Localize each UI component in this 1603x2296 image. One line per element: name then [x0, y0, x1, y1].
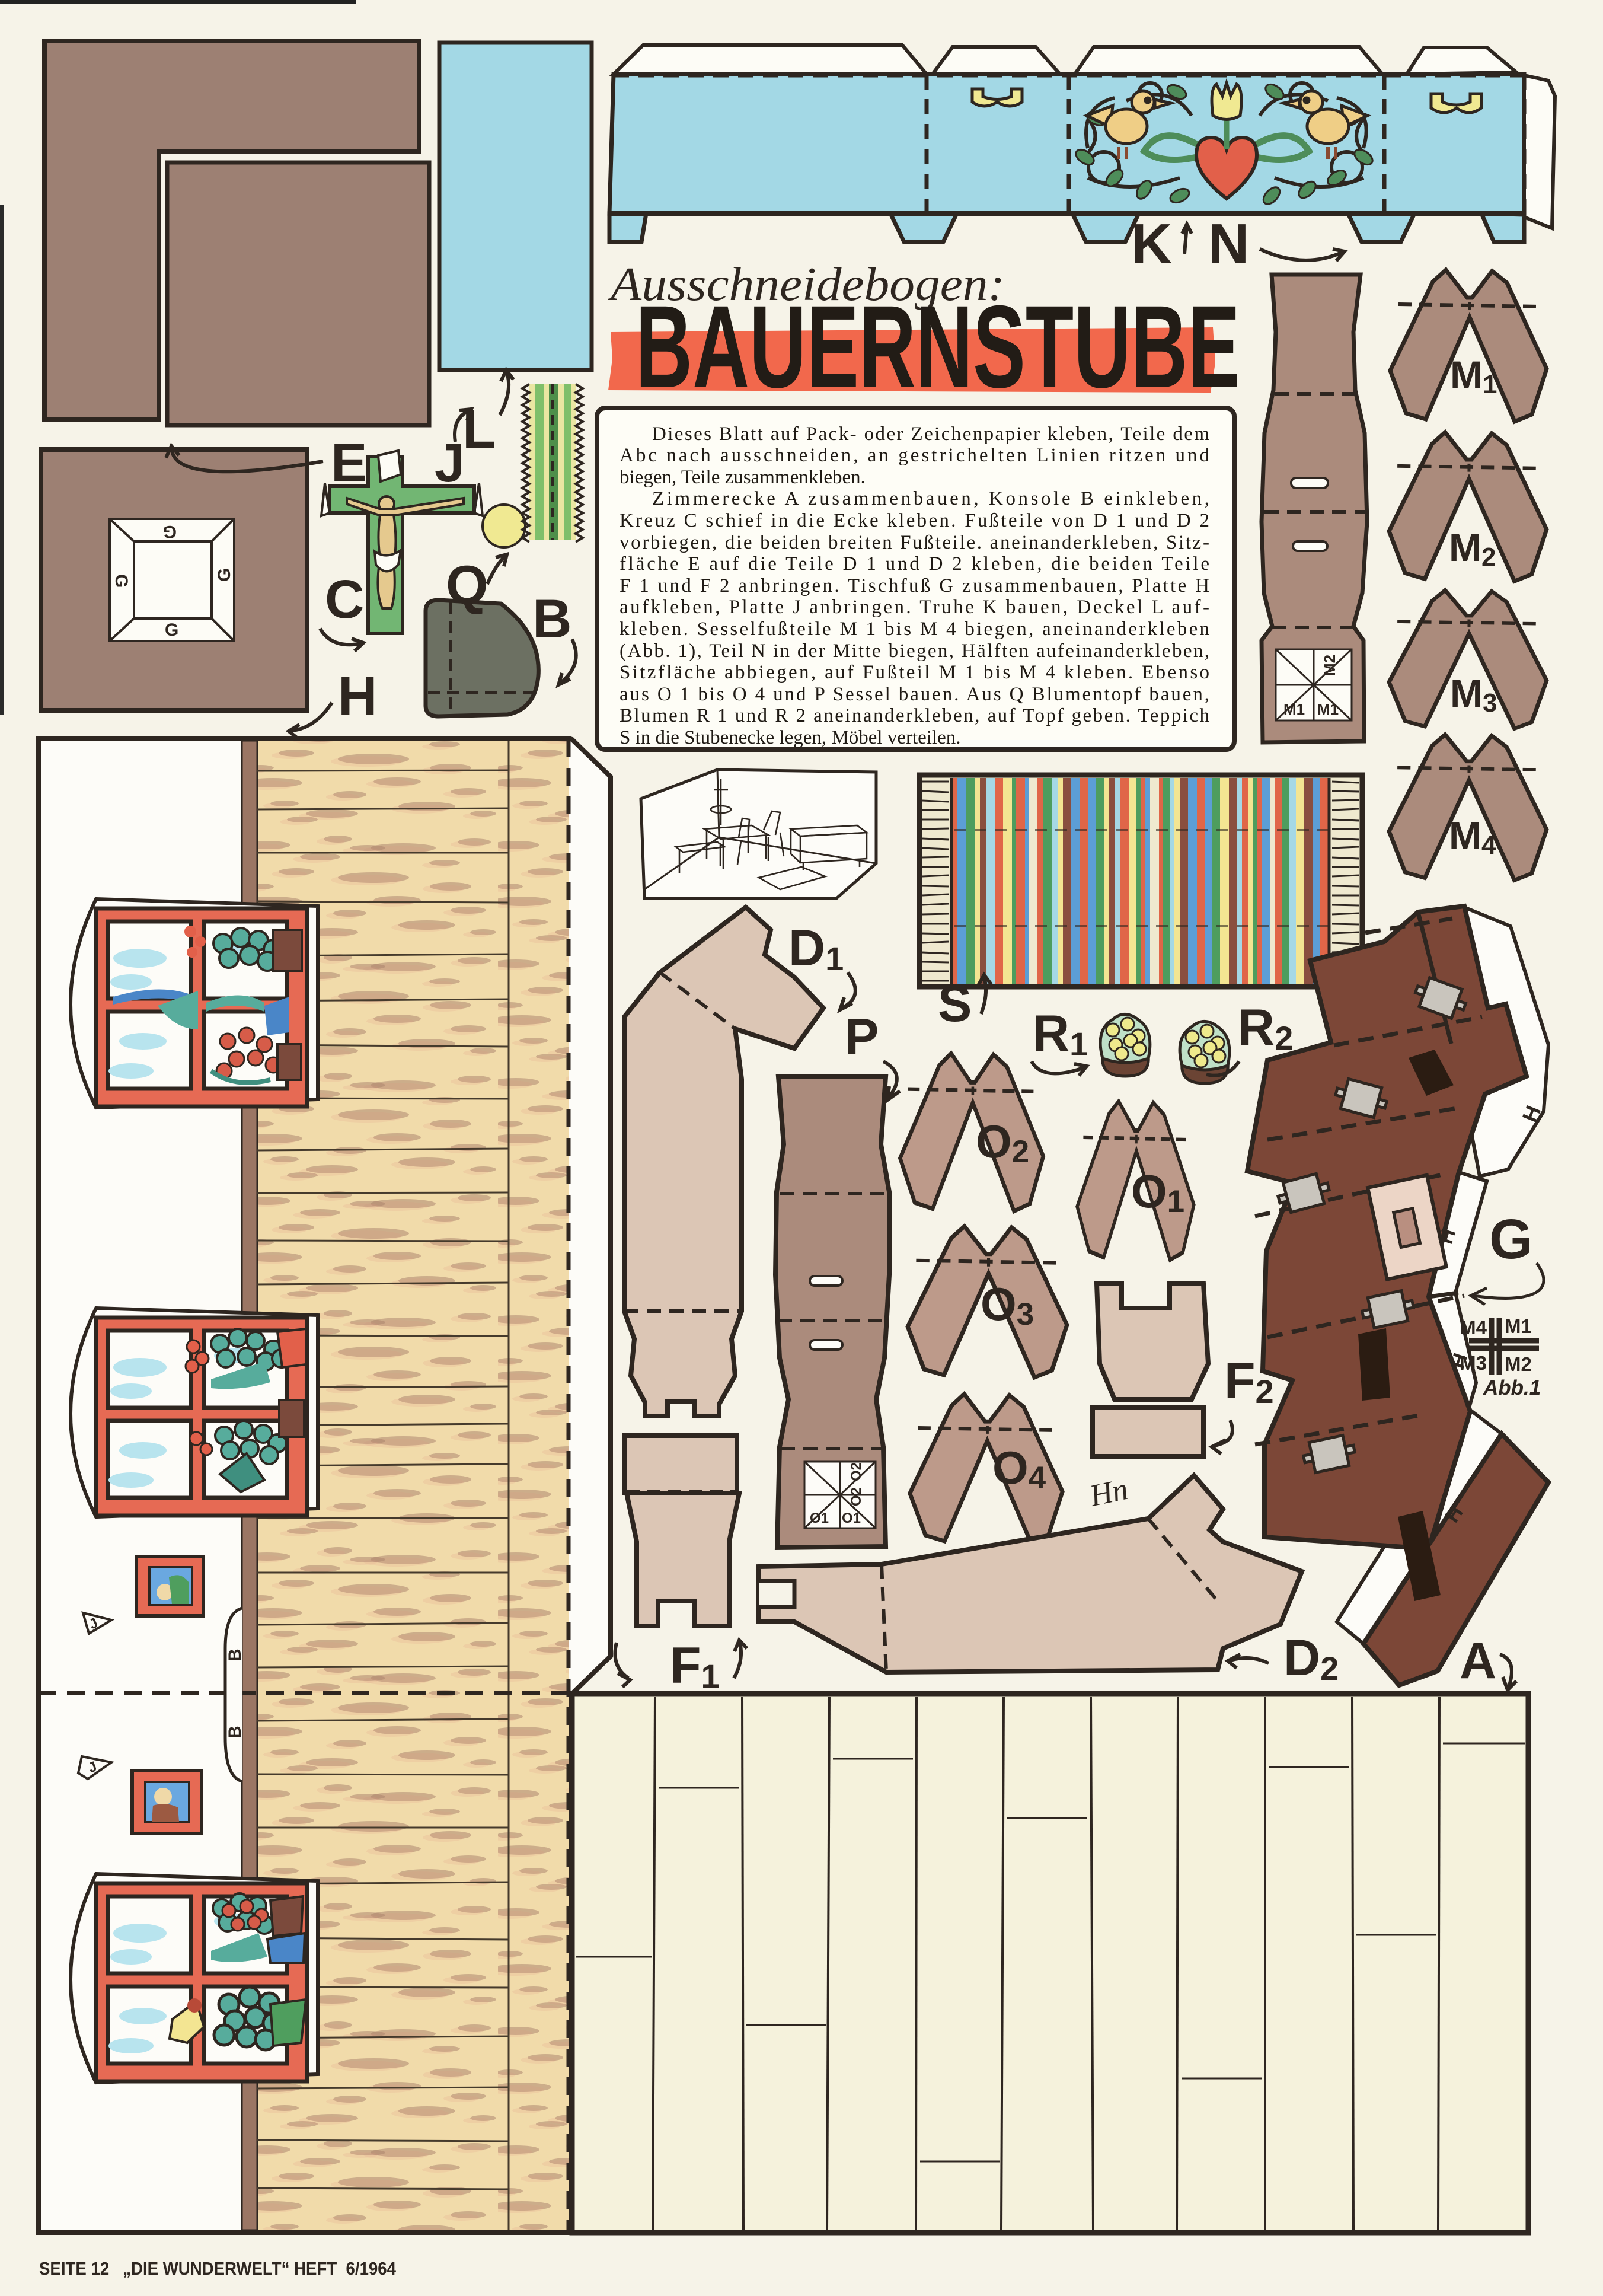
svg-text:M2: M2 [1505, 1353, 1532, 1375]
svg-text:B: B [225, 1726, 245, 1739]
svg-text:Kreuz C schief in die Ecke kle: Kreuz C schief in die Ecke kleben. Fußte… [620, 510, 1209, 531]
svg-text:BAUERNSTUBE: BAUERNSTUBE [636, 281, 1240, 412]
svg-text:O2: O2 [848, 1462, 864, 1481]
svg-text:G: G [215, 568, 234, 582]
svg-text:A: A [1460, 1632, 1496, 1689]
svg-text:E: E [331, 433, 367, 493]
svg-text:Zimmerecke A zusammenbauen, Ko: Zimmerecke A zusammenbauen, Konsole B ei… [652, 488, 1209, 509]
svg-text:G: G [163, 522, 177, 541]
svg-text:S in die Stubenecke legen, Möb: S in die Stubenecke legen, Möbel verteil… [620, 727, 961, 748]
svg-text:M2: M2 [1321, 655, 1339, 676]
svg-text:S: S [938, 975, 972, 1032]
svg-text:M1: M1 [1283, 700, 1305, 718]
svg-text:biegen, Teile zusammenkleben.: biegen, Teile zusammenkleben. [620, 467, 866, 488]
svg-text:C: C [325, 569, 364, 630]
svg-text:P: P [845, 1009, 879, 1066]
svg-text:F 1 und F 2 anbringen. Tischfu: F 1 und F 2 anbringen. Tischfuß G zusamm… [620, 575, 1209, 597]
svg-text:aufkleben, Platte J anbringen.: aufkleben, Platte J anbringen. Truhe K b… [620, 597, 1209, 618]
svg-text:G: G [165, 620, 178, 640]
svg-text:M1: M1 [1317, 700, 1339, 718]
svg-text:B: B [225, 1648, 245, 1662]
svg-text:L: L [462, 399, 496, 460]
svg-text:Abb.1: Abb.1 [1483, 1376, 1541, 1399]
svg-text:O1: O1 [842, 1510, 861, 1526]
svg-text:SEITE 12 „DIE WUNDERWELT“ HE: SEITE 12 „DIE WUNDERWELT“ HEFT 6/1964 [39, 2258, 397, 2279]
svg-text:H: H [338, 666, 377, 726]
svg-text:M1: M1 [1505, 1315, 1532, 1337]
svg-text:O2: O2 [848, 1487, 864, 1506]
svg-text:N: N [1208, 212, 1249, 276]
svg-text:B: B [532, 589, 571, 649]
svg-text:Blumen R 1 und R 2 aneinanderk: Blumen R 1 und R 2 aneinanderkleben, auf… [620, 705, 1210, 726]
svg-text:Dieses Blatt auf Pack- oder Ze: Dieses Blatt auf Pack- oder Zeichenpapie… [652, 423, 1209, 445]
svg-text:G: G [111, 574, 131, 588]
svg-text:Q: Q [446, 555, 488, 616]
svg-text:M4: M4 [1460, 1316, 1487, 1338]
svg-text:O1: O1 [810, 1510, 829, 1526]
svg-text:J: J [435, 433, 465, 493]
svg-text:Sitzfläche abbiegen, auf Fußte: Sitzfläche abbiegen, auf Fußteil M 1 bis… [620, 662, 1209, 683]
svg-text:M3: M3 [1460, 1352, 1487, 1374]
svg-text:G: G [1489, 1208, 1533, 1271]
svg-text:K: K [1131, 212, 1172, 276]
svg-text:Abc nach ausschneiden, an gest: Abc nach ausschneiden, an gestrichelten … [620, 445, 1209, 466]
svg-text:vorbiegen, die beiden breiten: vorbiegen, die beiden breiten Fußteile. … [620, 532, 1209, 553]
